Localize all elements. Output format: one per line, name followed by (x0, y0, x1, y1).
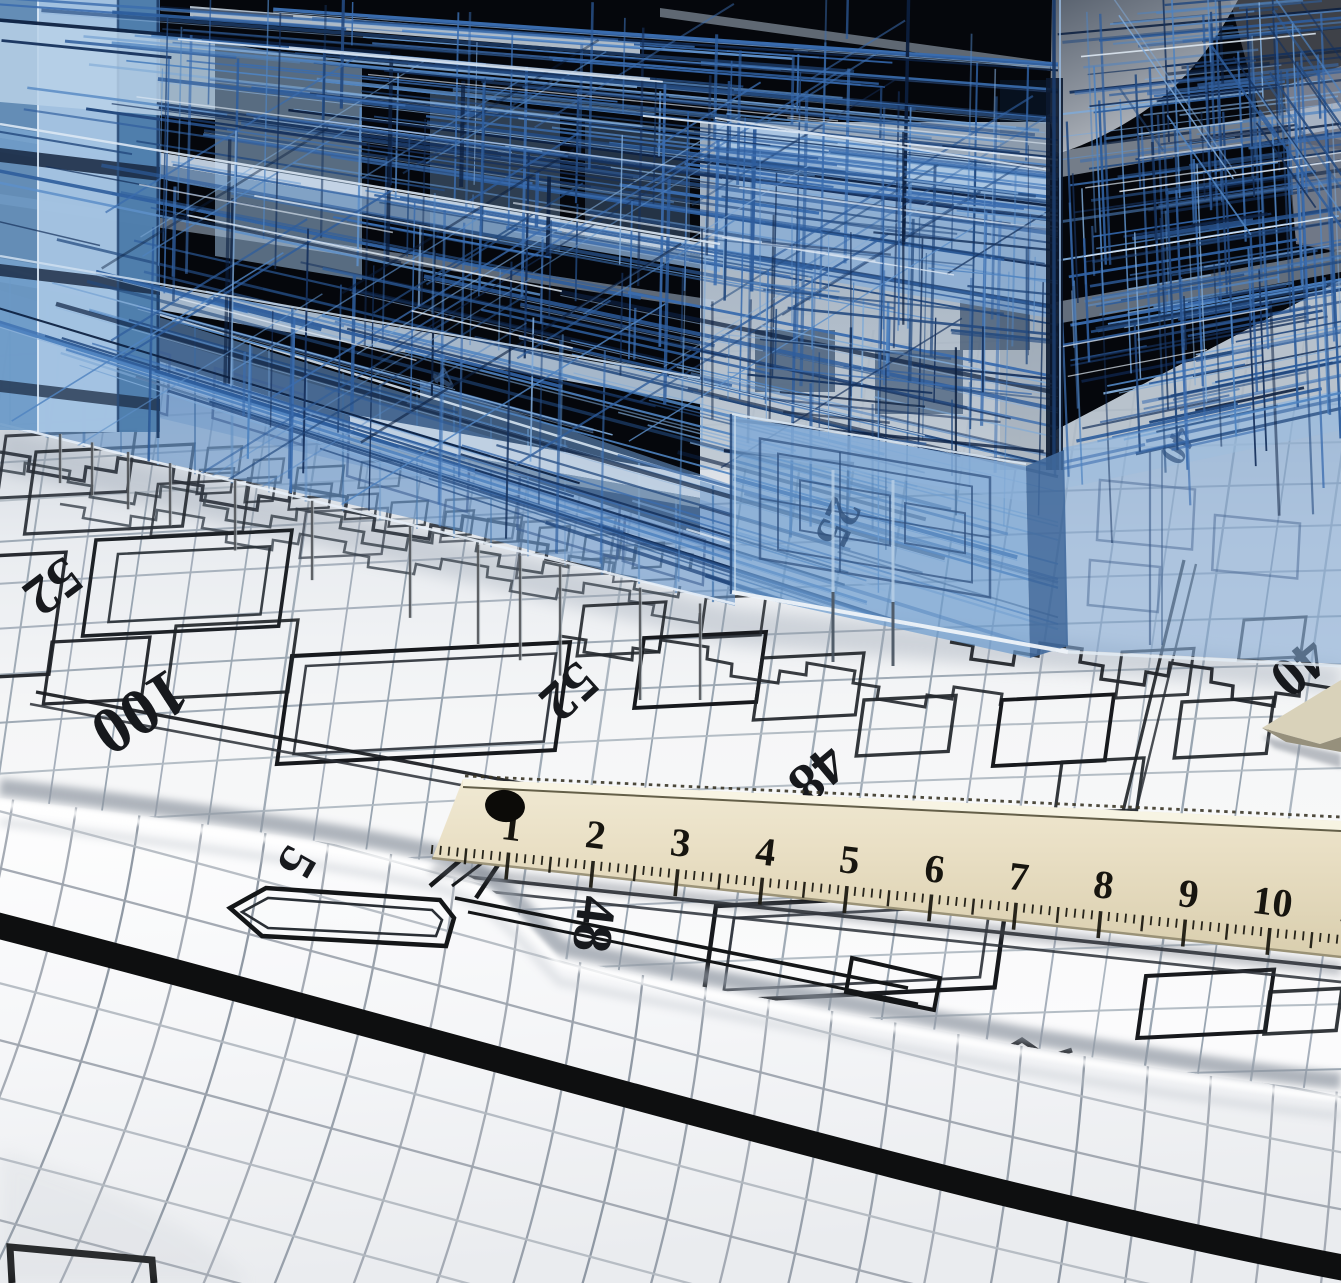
svg-text:10: 10 (1250, 877, 1295, 927)
svg-text:48: 48 (560, 893, 628, 956)
